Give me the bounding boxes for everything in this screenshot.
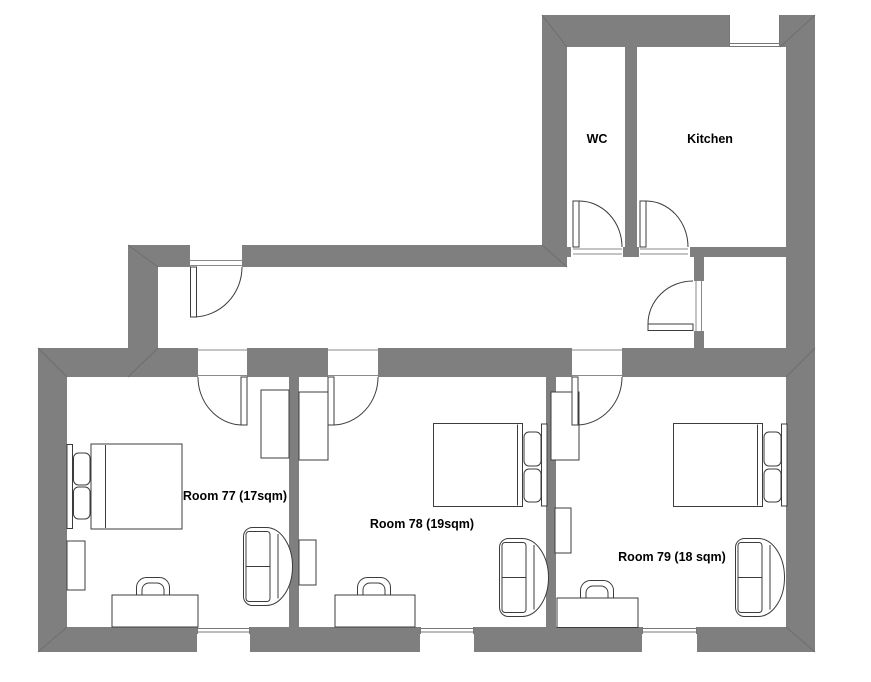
room78-door (328, 350, 378, 425)
door-leaf (640, 201, 646, 247)
wall-right-outer (786, 15, 815, 652)
room79-window (642, 627, 697, 634)
wall-rooms-top-4 (622, 348, 786, 377)
door-swing-arc (648, 281, 693, 324)
label-room-78: Room 78 (19sqm) (370, 517, 474, 531)
wardrobe (299, 392, 328, 460)
room78-window (420, 627, 474, 634)
door-swing-arc (646, 201, 688, 247)
floor-plan-svg: WC Kitchen Room 77 (17sqm) Room 78 (19sq… (0, 0, 871, 682)
radiator (555, 508, 571, 553)
door-swing-arc (334, 377, 378, 425)
door-swing-arc (198, 377, 241, 425)
wall-corridor-end-upper (694, 257, 704, 281)
wc-door (573, 201, 622, 254)
wall-bottom-2 (250, 627, 420, 652)
wall-bottom-1 (38, 627, 197, 652)
bed (67, 444, 182, 529)
wall-block-left (542, 15, 567, 267)
room77-door (198, 350, 247, 425)
wall-kitchen-bottom (690, 247, 786, 257)
wall-bottom-3 (474, 627, 642, 652)
wall-wc-bottom-stub (567, 247, 571, 257)
wall-divider-77-78 (289, 377, 299, 627)
wall-between-wc-kitchen-doors (623, 247, 639, 257)
kitchen-window (729, 15, 780, 47)
wall-corridor-end-lower (694, 331, 704, 348)
sofa (244, 528, 293, 606)
door-swing-arc (578, 377, 622, 425)
room79-furniture (551, 392, 787, 628)
desk (112, 595, 198, 627)
door-leaf (573, 201, 579, 247)
radiator (299, 540, 316, 585)
bed-pillow (74, 453, 91, 485)
label-wc: WC (587, 132, 608, 146)
door-leaf (648, 324, 693, 331)
wall-corridor-top-right (242, 245, 567, 267)
wall-rooms-top-3 (378, 348, 572, 377)
wall-rooms-top-2 (247, 348, 328, 377)
floor-plan: WC Kitchen Room 77 (17sqm) Room 78 (19sq… (0, 0, 871, 682)
door-swing-arc (579, 201, 622, 247)
door-leaf (328, 377, 334, 425)
door-leaf (572, 377, 578, 425)
room77-window (197, 627, 250, 634)
wardrobe (261, 390, 289, 458)
bed (674, 424, 788, 507)
wall-wc-kitchen-divider (625, 15, 637, 257)
kitchen-door (640, 201, 688, 254)
wall-left-outer (38, 348, 67, 652)
wall-bottom-4 (697, 627, 815, 652)
corridor-end-door (648, 281, 702, 331)
label-kitchen: Kitchen (687, 132, 733, 146)
radiator (67, 541, 85, 590)
sofa (736, 539, 785, 617)
entrance-door (190, 261, 242, 318)
door-swing-arc (194, 267, 242, 317)
label-room-77: Room 77 (17sqm) (183, 489, 287, 503)
room78-furniture (299, 392, 549, 627)
room77-furniture (67, 390, 293, 627)
bed-headboard (67, 445, 73, 529)
sofa (500, 539, 549, 617)
bed (434, 424, 548, 507)
door-leaf (241, 377, 247, 425)
desk (335, 595, 415, 627)
door-leaf (191, 267, 197, 317)
bed-pillow (74, 487, 91, 519)
label-room-79: Room 79 (18 sqm) (618, 550, 726, 564)
desk (557, 598, 638, 628)
bed-mattress (91, 444, 182, 529)
